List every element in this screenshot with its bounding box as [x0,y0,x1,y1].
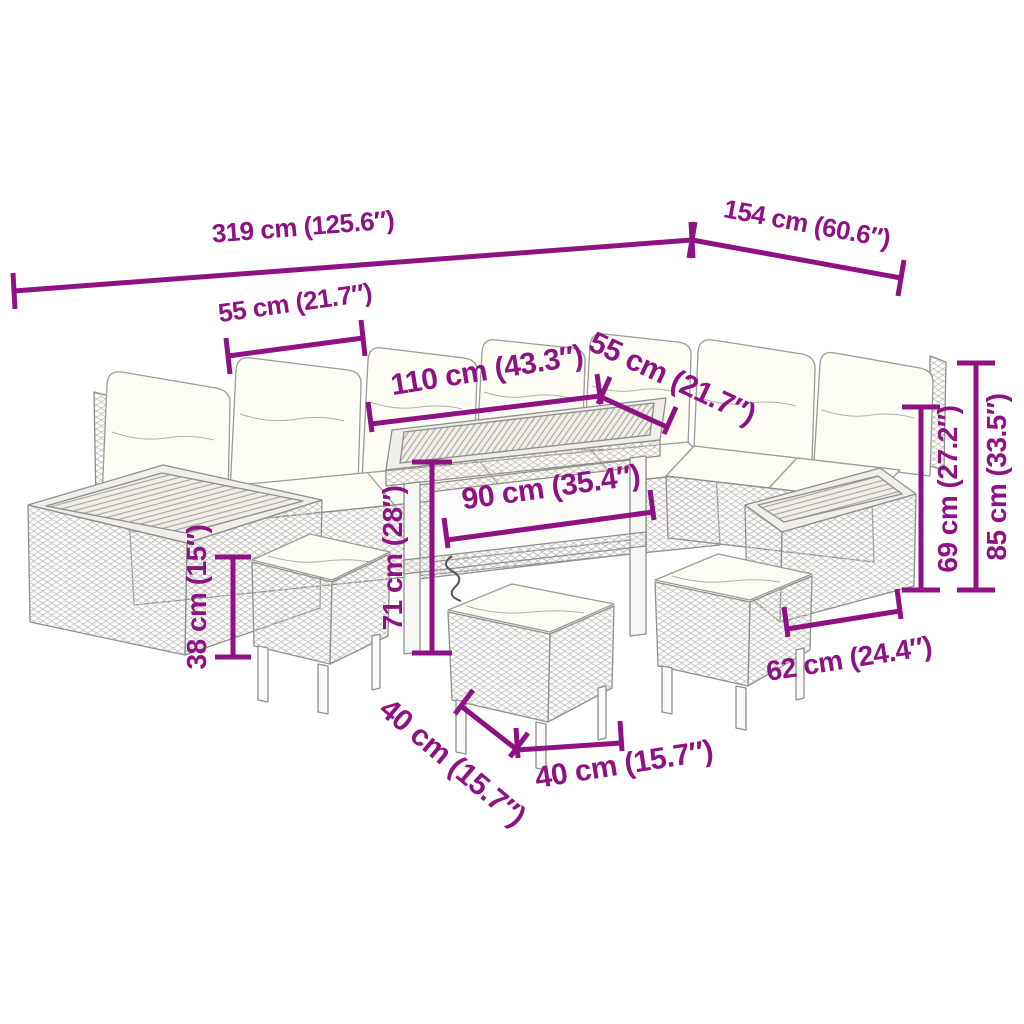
stool-center [448,584,614,770]
stool-right [655,554,812,730]
dim-label-total-height: 85 cm (33.5″) [981,393,1013,560]
stool-left [252,534,390,714]
dim-label-table-height: 71 cm (28″) [377,486,409,631]
furniture-illustration [0,0,1024,1024]
dimension-diagram: 319 cm (125.6″) 154 cm (60.6″) 55 cm (21… [0,0,1024,1024]
dim-label-backrest-height: 69 cm (27.2″) [932,405,964,572]
dim-label-seat-height: 38 cm (15″) [181,525,213,670]
